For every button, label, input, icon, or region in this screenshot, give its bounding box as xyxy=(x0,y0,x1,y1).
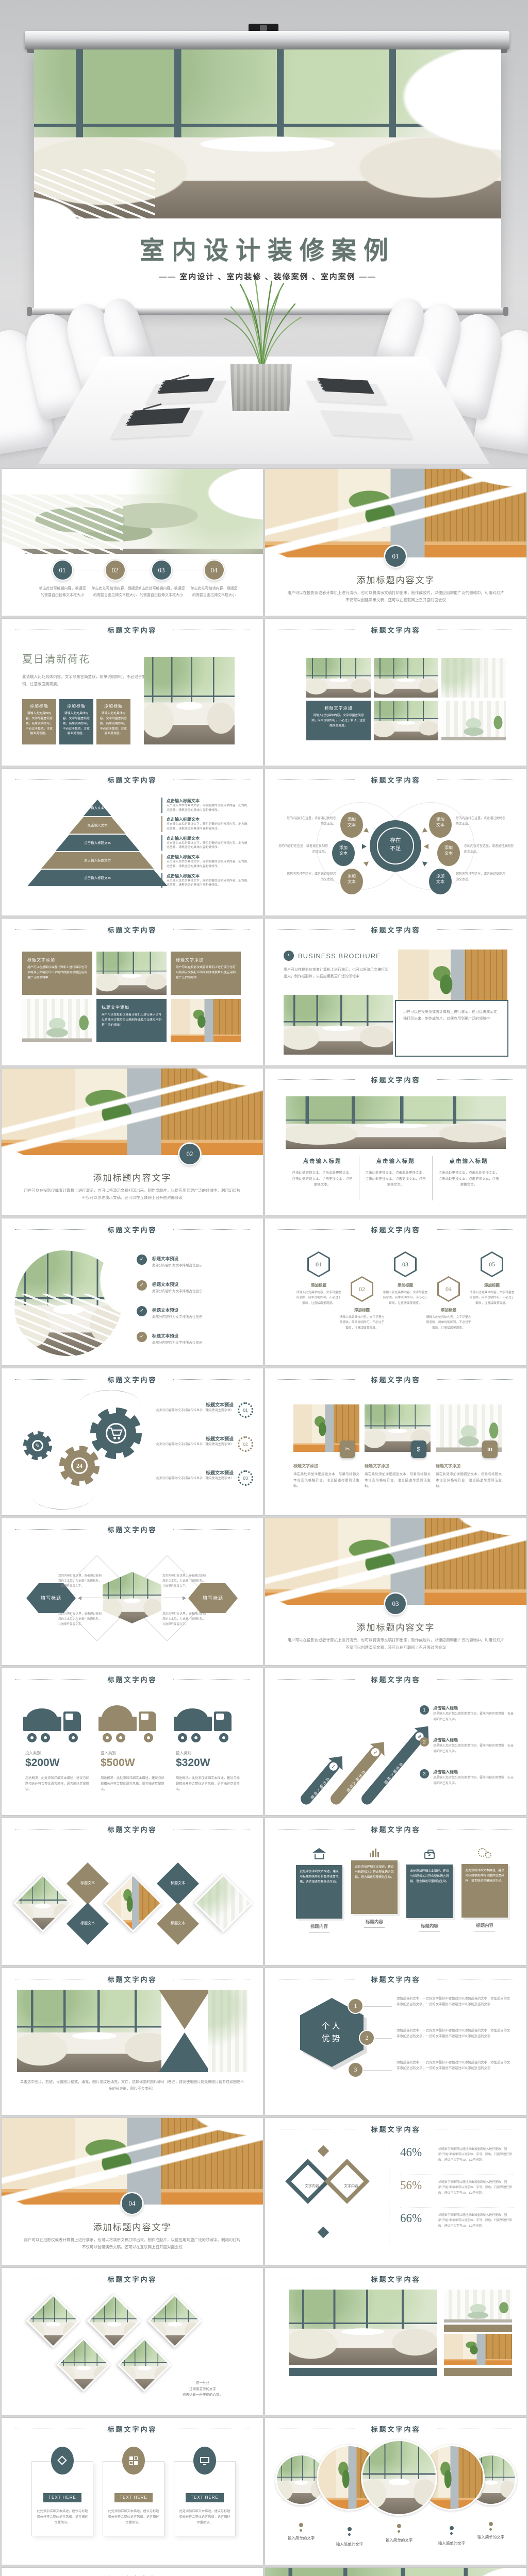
grid-photo xyxy=(441,701,506,740)
advantage-number: 2 xyxy=(360,2031,374,2045)
hero-title: 室内设计装修案例 xyxy=(34,230,501,266)
caption: 这一丝丝 江南雨芬芳的文字 也表达着一份美丽的心情。 xyxy=(161,2380,244,2398)
diamond-photo xyxy=(13,1874,72,1932)
column-item: 点击输入标题 点击此处更换文本，点击此处更换文本，点击此处更换文本，点击更换文本… xyxy=(286,1157,359,1188)
slide-title: 添加标题内容文字 xyxy=(265,573,526,586)
diamond-outline-tan xyxy=(324,2159,370,2204)
slide-header: 标题文字内容 xyxy=(265,1824,526,1834)
section-number: 03 xyxy=(385,1594,406,1614)
slide-27[interactable]: 标题文字内容 TEXT HERE 此处添加详细文本描述，建议与标题相关并符合整体… xyxy=(2,2418,263,2565)
truck-icon xyxy=(23,1705,85,1742)
slide-header: 标题文字内容 xyxy=(265,2424,526,2434)
pyramid-legend: 点击输入标题文本 点击输入本栏的具体文字，简明扼要的说明分项内容，此为概念图解，… xyxy=(161,798,250,888)
check-icon: ✓ xyxy=(137,1332,147,1342)
diamond-photo xyxy=(87,2294,141,2348)
monitor-icon xyxy=(193,2447,216,2475)
diamond-label: 标题文本 xyxy=(67,1862,109,1905)
legend-item: 点击输入标题文本 点击输入本栏的具体文字，简明扼要的说明分项内容，此为概念图解，… xyxy=(161,798,250,813)
diamond-photo xyxy=(26,2294,80,2348)
slide-header: 标题文字内容 xyxy=(2,1375,263,1384)
slide-header: 标题文字内容 xyxy=(265,2124,526,2134)
gear-legend-item: 标题文本预设 此部分内容作为文字排版占位显示（建议使用主题字体） xyxy=(148,1435,234,1448)
dot xyxy=(397,2524,401,2528)
folder xyxy=(320,410,412,439)
slide-header: 标题文字内容 xyxy=(265,1225,526,1234)
hex-label: 添加标题请输入此处具体内容，文字尽量言简意赅，简单说明即可，不必过于繁琐，注意版… xyxy=(425,1307,472,1331)
slide-title: 添加标题内容文字 xyxy=(265,1620,526,1633)
diamond-outline-teal xyxy=(285,2159,331,2204)
grid-icon xyxy=(122,2447,145,2475)
slide-header: 标题文字内容 xyxy=(265,1375,526,1384)
grid-photo xyxy=(171,999,241,1042)
slide-21[interactable]: 标题文字内容 单击选中图片，右键，设置图片格式，填充，图片或纹理填充，文件，选择… xyxy=(2,1968,263,2115)
percent-value: 66% xyxy=(400,2212,422,2225)
slide-24[interactable]: 标题文字内容 文字内容 文字内容 46% 标题数字等都可以通过点击和重新输入进行… xyxy=(265,2118,526,2265)
diamond-label: 标题文本 xyxy=(157,1862,199,1905)
legend-item: 点击输入标题文本 点击输入本栏的具体文字，简明扼要的说明分项内容，此为概念图解，… xyxy=(161,835,250,851)
hex-label: 添加标题请输入此处具体内容，文字尽量言简意赅，简单说明即可，不必过于繁琐，注意版… xyxy=(339,1307,385,1331)
hexagon-number: 01 xyxy=(307,1251,330,1277)
dot xyxy=(489,2528,492,2531)
step-number: 04 xyxy=(205,561,224,580)
column-item: 点击输入标题 点击此处更换文本，点击此处更换文本，点击此处更换文本，点击更换文本… xyxy=(359,1157,432,1188)
diamond-photo xyxy=(148,2294,202,2348)
slide-title: BUSINESS BROCHURE xyxy=(298,952,381,960)
slide02-kitchen-photo xyxy=(265,469,526,557)
stat-column: 此处添加详细文本描述，建议与标题相关并符合整体语言风格，语言描述尽量简洁生动。 … xyxy=(296,1848,342,1933)
dotted-separator xyxy=(400,2208,514,2208)
hex-label: 添加标题请输入此处具体内容，文字尽量言简意赅，简单说明即可，不必过于繁琐，注意版… xyxy=(295,1282,342,1306)
slide-06[interactable]: 标题文字内容 存在不足 添加文本 添加文本 添加文本 添加文本 添加文本 添加文… xyxy=(265,769,526,916)
node-ellipse: 添加文本 xyxy=(437,840,460,866)
step-number: 02 xyxy=(106,561,125,580)
slide-title: 添加标题内容文字 xyxy=(2,1171,263,1183)
photo-banner xyxy=(17,1990,247,2072)
stat-column: 此处添加详细文本描述，建议与标题相关并符合整体语言风格，语言描述尽量简洁生动。 … xyxy=(406,1848,453,1932)
slide-07[interactable]: 标题文字内容 标题文字添加用户可以在投影仪或者计算机上进行演示也可以将演示文稿打… xyxy=(2,919,263,1065)
connector-line xyxy=(363,2070,392,2071)
slide-header: 标题文字内容 xyxy=(2,775,263,785)
diamond-photo xyxy=(194,1874,252,1932)
list-number: 1 xyxy=(420,1705,429,1715)
hero-banner: 室内设计装修案例 —— 室内设计 、室内装修 、装修案例 、室内案例 —— xyxy=(0,0,528,469)
slide-09[interactable]: 02 添加标题内容文字 用户可以在投影仪或者计算机上进行演示，也可以将演示文稿打… xyxy=(2,1069,263,1215)
slide-title: 添加标题内容文字 xyxy=(2,2220,263,2233)
column-item: 点击输入标题 点击此处更换文本，点击此处更换文本，点击此处更换文本，点击更换文本… xyxy=(432,1157,505,1188)
section-number: 02 xyxy=(179,1144,200,1164)
hex-label: 添加标题请输入此处具体内容，文字尽量言简意赅，简单说明即可，不必过于繁琐，注意版… xyxy=(382,1282,428,1306)
stat-column: 此处添加详细文本描述，建议与标题相关并符合整体语言风格，语言描述尽量简洁生动。 … xyxy=(461,1848,508,1931)
percent-value: 56% xyxy=(400,2179,422,2192)
section-number: 01 xyxy=(385,546,406,567)
diamond-photo xyxy=(57,2338,111,2392)
gem-icon xyxy=(51,2447,74,2475)
slide-13[interactable]: 标题文字内容 24 ✎ 标题文本预设 此部分内容作为文字排版占位显示（建议使用主… xyxy=(2,1368,263,1515)
slide-header: 标题文字内容 xyxy=(2,1674,263,1684)
slide-11[interactable]: 标题文字内容 ✓ 标题文本预设 此部分内容作为文字排版占位显示 ✓ 标题文本预设… xyxy=(2,1218,263,1365)
grid-photo xyxy=(22,999,92,1042)
gear-legend-item: 标题文本预设 此部分内容作为文字排版占位显示（建议使用主题字体） xyxy=(148,1401,234,1414)
slide-header: 标题文字内容 xyxy=(2,925,263,935)
gear-number: 01 xyxy=(238,1402,253,1418)
stat-column: 此处添加详细文本描述，建议与标题相关并符合整体语言风格，语言描述尽量简洁生动。 … xyxy=(351,1848,398,1928)
gear-pencil-icon: ✎ xyxy=(23,1431,52,1460)
text-card: 标题文字添加请输入此处具体内容，文字尽量言简意赅，简单说明即可，不必过于繁琐，注… xyxy=(306,701,371,740)
slide-15[interactable]: 标题文字内容 填写标题 填写标题 您的内容打在这里，或者通过复制您的文本后，在此… xyxy=(2,1518,263,1665)
card-label: TEXT HERE xyxy=(186,2493,224,2502)
hexagon-number: 05 xyxy=(481,1251,503,1277)
slide-18[interactable]: 标题文字内容 1点击输入标题 2点击输入标题 3点击输入标题 1 点击输入标题 … xyxy=(265,1668,526,1815)
node-ellipse: 添加文本 xyxy=(340,869,363,894)
value: $200W xyxy=(25,1757,60,1769)
dot xyxy=(348,2533,351,2536)
dot xyxy=(450,2526,454,2530)
slide23-kitchen-photo xyxy=(2,2118,263,2205)
dotted-separator xyxy=(400,2175,514,2175)
check-icon: ✓ xyxy=(137,1255,147,1265)
truck-icon xyxy=(98,1705,160,1742)
slide-header: 标题文字内容 xyxy=(265,775,526,785)
slide-header: 标题文字内容 xyxy=(265,1075,526,1084)
slide-19[interactable]: 标题文字内容 标题文本 标题文本 标题文本 标题文本 xyxy=(2,1818,263,1965)
gear-number: 02 xyxy=(238,1436,253,1452)
diamond-label: 标题文本 xyxy=(157,1903,199,1945)
text-card: 添加标题请输入此处具体内容，文字尽量言简意赅，简单说明即可，不必过于繁琐，注意版… xyxy=(96,699,130,744)
hexagon-number: 04 xyxy=(437,1276,460,1302)
slide-header: 标题文字内容 xyxy=(2,2274,263,2284)
text-card: 添加标题请输入此处具体内容，文字尽量言简意赅，简单说明即可，不必过于繁琐，注意版… xyxy=(22,699,56,744)
slide-25[interactable]: 标题文字内容 这一丝丝 江南雨芬芳的文字 也表达着一份美丽的心情。 xyxy=(2,2268,263,2415)
hexagon-number: 02 xyxy=(351,1276,373,1302)
chevron-icon: › xyxy=(284,951,294,961)
arrow-right xyxy=(163,1598,185,1598)
circle-photo xyxy=(361,2439,437,2516)
step-item: 03 单击此处可编辑内容，根据您的需要自由拉伸文本框大小 xyxy=(137,561,186,599)
slide-28[interactable]: 标题文字内容 输入简单的文字 输入简单的文字 输入简单的文字 输入简单的文字 输… xyxy=(265,2418,526,2565)
slide-26[interactable]: 标题文字内容 xyxy=(265,2268,526,2415)
grid-photo xyxy=(441,658,506,698)
step-item: 02 单击此处可编辑内容，根据您的需要自由拉伸文本框大小 xyxy=(90,561,140,599)
grid-photo xyxy=(374,701,438,740)
grass-plant xyxy=(205,277,319,367)
list-number: 2 xyxy=(420,1737,429,1747)
slide-header: 标题文字内容 xyxy=(2,1524,263,1534)
scissors-icon: ✂ xyxy=(340,1440,355,1458)
slide-header: 标题文字内容 xyxy=(2,625,263,635)
text-card: 标题文字添加用户可以在投影仪或者计算机上进行演示也可以将演示文稿打印出来制作成胶… xyxy=(171,952,241,995)
slide16-kitchen-photo xyxy=(265,1518,526,1605)
projector-screen-top-bar xyxy=(25,31,509,49)
center-donut: 存在不足 xyxy=(370,820,421,872)
color-bar-teal xyxy=(289,2368,437,2376)
color-bar-tan xyxy=(444,2368,512,2376)
small-diamond xyxy=(318,2227,329,2239)
slide10-photo xyxy=(286,1096,506,1149)
slide-title: 夏日清新荷花 xyxy=(22,651,90,666)
check-icon: ✓ xyxy=(137,1280,147,1291)
connector-line xyxy=(363,2006,392,2007)
slide-header: 标题文字内容 xyxy=(265,625,526,635)
connector-line xyxy=(371,2038,392,2039)
gear-24h-icon: 24 xyxy=(59,1446,100,1486)
slide-header: 标题文字内容 xyxy=(2,1824,263,1834)
slide-header: 标题文字内容 xyxy=(2,2574,263,2576)
diamond-photo xyxy=(104,1874,162,1932)
slide-header: 标题文字内容 xyxy=(2,1974,263,1984)
slide30-photo xyxy=(265,2568,526,2576)
dot xyxy=(348,2527,352,2531)
slide-23[interactable]: 04 添加标题内容文字 用户可以在投影仪或者计算机上进行演示，也可以将演示文稿打… xyxy=(2,2118,263,2265)
slide-header: 标题文字内容 xyxy=(2,2424,263,2434)
dot xyxy=(450,2532,453,2535)
slide-29[interactable]: 标题文字内容 填写小标题 填写小标题 填写小标题 填写小标题 您的内容打在这里，… xyxy=(2,2568,263,2576)
card-label: TEXT HERE xyxy=(43,2493,81,2502)
collage-main-photo xyxy=(289,2290,437,2365)
text-card: 添加标题请输入此处具体内容，文字尽量言简意赅，简单说明即可，不必过于繁琐，注意版… xyxy=(59,699,93,744)
grid-photo xyxy=(374,658,438,698)
slide-header: 标题文字内容 xyxy=(265,2274,526,2284)
collage-photo xyxy=(444,2334,512,2365)
diamond-label: 文字内容 xyxy=(302,2184,322,2190)
step-item: 04 单击此处可编辑内容，根据您的需要自由拉伸文本框大小 xyxy=(189,561,239,599)
advantage-number: 3 xyxy=(349,2063,362,2077)
dot xyxy=(398,2530,400,2533)
card-label: TEXT HERE xyxy=(114,2493,153,2502)
arrow-left xyxy=(79,1598,101,1598)
node-ellipse: 添加文本 xyxy=(332,840,355,866)
grid-photo xyxy=(306,658,371,698)
slide08-photo xyxy=(284,995,393,1055)
slide-header: 标题文字内容 xyxy=(265,1674,526,1684)
template-preview-page: 室内设计装修案例 —— 室内设计 、室内装修 、装修案例 、室内案例 —— xyxy=(0,0,528,2576)
slide-14[interactable]: 标题文字内容 ✂ 标题文字添加 请在此处添加详细描述文本，尽量与标题文本语言风格… xyxy=(265,1368,526,1515)
check-icon: ✓ xyxy=(137,1306,147,1316)
gear-legend-item: 标题文本预设 此部分内容作为文字排版占位显示（建议使用主题字体） xyxy=(148,1469,234,1482)
grid-photo xyxy=(96,952,167,995)
dot xyxy=(300,2529,302,2532)
slide-header: 标题文字内容 xyxy=(265,925,526,935)
list-number: 3 xyxy=(420,1769,429,1778)
node-ellipse: 添加文本 xyxy=(340,812,363,838)
plant-pot xyxy=(228,364,294,411)
slide-01[interactable]: 01 单击此处可编辑内容，根据您的需要自由拉伸文本框大小 02 单击此处可编辑内… xyxy=(2,469,263,616)
outlined-text-box: 用户可以在投影仪或者计算机上进行演示，也可以将演示文稿打印出来，制作成胶片，以便… xyxy=(395,1000,508,1057)
step-number: 03 xyxy=(152,561,171,580)
slide-20[interactable]: 标题文字内容 此处添加详细文本描述，建议与标题相关并符合整体语言风格，语言描述尽… xyxy=(265,1818,526,1965)
legend-item: 点击输入标题文本 点击输入本栏的具体文字，简明扼要的说明分项内容，此为概念图解，… xyxy=(161,873,250,888)
text-card: 标题文字添加用户可以在投影仪或者计算机上进行演示也可以将演示文稿打印出来制作成胶… xyxy=(22,952,92,995)
slide11-photo xyxy=(14,1250,123,1356)
slide-05[interactable]: 标题文字内容 输入文本 点击输入文本 点击输入标题文本 点击输入标题文本 点击输… xyxy=(2,769,263,916)
pyramid-diagram: 输入文本 点击输入文本 点击输入标题文本 点击输入标题文本 点击输入标题文本 xyxy=(27,799,168,886)
dollar-icon: $ xyxy=(411,1440,426,1458)
slide-08[interactable]: 标题文字内容 › BUSINESS BROCHURE 用户可以在投影仪或者计算机… xyxy=(265,919,526,1065)
slide03-photo xyxy=(144,657,235,744)
collage-photo xyxy=(444,2290,512,2323)
dotted-divider xyxy=(389,2148,389,2244)
dot xyxy=(299,2523,303,2527)
arrow-icon xyxy=(424,844,428,849)
slide-16[interactable]: 03 添加标题内容文字 用户可以在投影仪或者计算机上进行演示，也可以将演示文稿打… xyxy=(265,1518,526,1665)
node-ellipse: 添加文本 xyxy=(429,812,452,838)
gear-number: 03 xyxy=(238,1470,253,1486)
slide09-kitchen-photo xyxy=(2,1069,263,1155)
advantage-number: 1 xyxy=(349,1999,362,2013)
arrow-icon xyxy=(362,844,367,849)
slide-17[interactable]: 标题文字内容 投入类别 投入类别 投入类别 $200W $500W $320W … xyxy=(2,1668,263,1815)
step-item: 01 单击此处可编辑内容，根据您的需要自由拉伸文本框大小 xyxy=(38,561,87,599)
slide-header: 标题文字内容 xyxy=(265,1974,526,1984)
diamond-label: 文字内容 xyxy=(341,2184,361,2190)
legend-item: 点击输入标题文本 点击输入本栏的具体文字，简明扼要的说明分项内容，此为概念图解，… xyxy=(161,854,250,869)
hexagon-number: 03 xyxy=(394,1251,417,1277)
slide-header: 标题文字内容 xyxy=(2,1225,263,1234)
percent-value: 46% xyxy=(400,2146,422,2159)
node-ellipse: 添加文本 xyxy=(429,869,452,894)
small-diamond xyxy=(318,2145,329,2157)
text-card: 标题文字添加用户可以在投影仪或者计算机上进行演示也可以将演示文稿打印出来制作成胶… xyxy=(96,999,167,1042)
slide-02[interactable]: 01 添加标题内容文字 用户可以在投影仪或者计算机上进行演示，也可以将演示文稿打… xyxy=(265,469,526,616)
linkedin-icon: in xyxy=(482,1440,498,1458)
projector-screen: 室内设计装修案例 —— 室内设计 、室内装修 、装修案例 、室内案例 —— xyxy=(34,49,501,310)
slide-10[interactable]: 标题文字内容 点击输入标题 点击此处更换文本，点击此处更换文本，点击此处更换文本… xyxy=(265,1069,526,1215)
hex-label: 添加标题请输入此处具体内容，文字尽量言简意赅，简单说明即可，不必过于繁琐，注意版… xyxy=(469,1282,515,1306)
section-number: 04 xyxy=(122,2193,142,2214)
slide-30[interactable]: 感谢聆听欢迎下载 xyxy=(265,2568,526,2576)
slide-22[interactable]: 标题文字内容 个人优势 1 2 3 添加适当的文字，一页的文字最好不要超过200… xyxy=(265,1968,526,2115)
step-number: 01 xyxy=(53,561,72,580)
slide-04[interactable]: 标题文字内容 标题文字添加请输入此处具体内容，文字尽量言简意赅，简单说明即可，不… xyxy=(265,619,526,766)
slide-12[interactable]: 标题文字内容 01 02 03 04 05 添加标题请输入此处具体内容，文字尽量… xyxy=(265,1218,526,1365)
dot xyxy=(489,2522,493,2526)
value: $500W xyxy=(101,1757,135,1769)
color-bar-tan xyxy=(444,2325,512,2332)
slide-03[interactable]: 标题文字内容 夏日清新荷花 此请输入此处具体内容，文字尽量言简意赅，简单说明即可… xyxy=(2,619,263,766)
hero-interior-photo xyxy=(34,49,501,218)
slide01-sofa-photo xyxy=(2,469,263,554)
value: $320W xyxy=(176,1757,210,1769)
truck-icon xyxy=(174,1705,236,1742)
legend-item: 点击输入标题文本 点击输入本栏的具体文字，简明扼要的说明分项内容，此为概念图解，… xyxy=(161,816,250,832)
diamond-label: 标题文本 xyxy=(67,1903,109,1945)
